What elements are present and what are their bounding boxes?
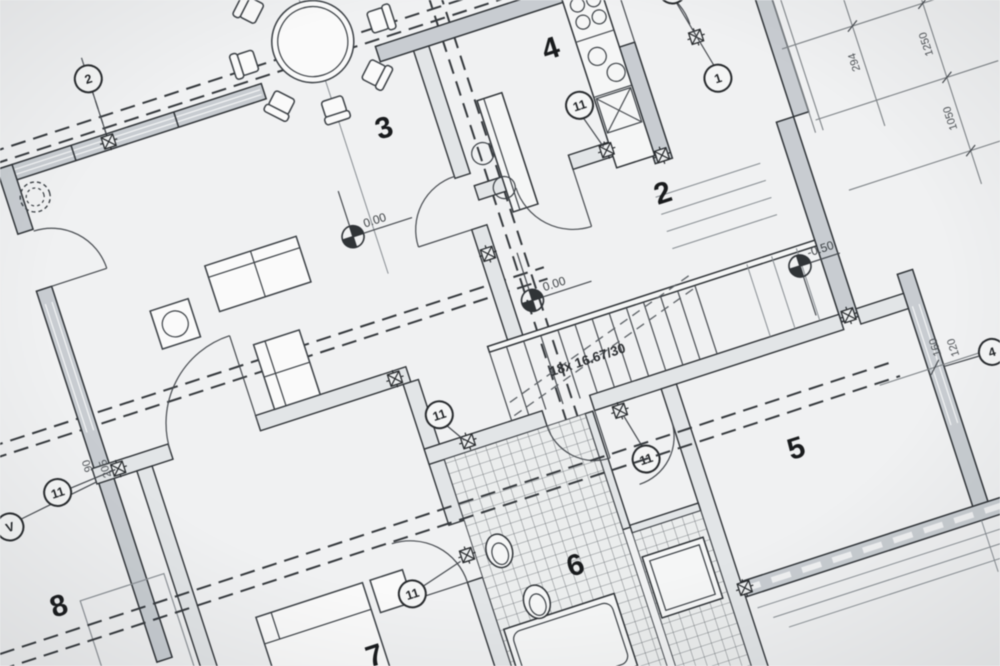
photo-vignette (0, 0, 1000, 666)
floor-plan-canvas: 0.00 0.00 -0.50 294 1250 1050 160 120 90… (0, 0, 1000, 666)
blueprint-photo: 0.00 0.00 -0.50 294 1250 1050 160 120 90… (0, 0, 1000, 666)
